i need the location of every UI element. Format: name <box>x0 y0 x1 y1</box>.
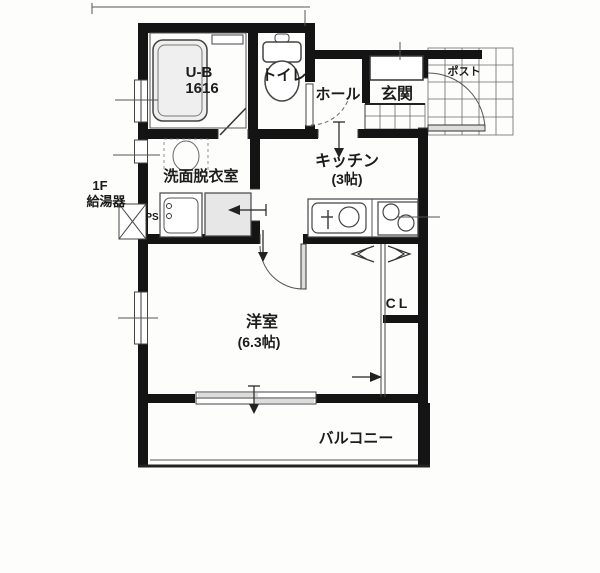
arrowhead <box>370 372 382 382</box>
floor-plan-svg: U-B 1616 トイレ ホール 玄関 ポスト キッチン (3帖) 洗面脱衣室 … <box>0 0 600 573</box>
room-door-leaf <box>301 244 306 289</box>
wall-right-main <box>418 128 428 403</box>
entrance-tile-grid <box>365 104 425 129</box>
washroom-area <box>160 139 251 237</box>
arrowhead <box>249 404 259 414</box>
entrance-label: 玄関 <box>381 84 413 103</box>
closet-folding-door-left <box>352 246 374 262</box>
wall-hall-bottom-right <box>358 129 428 138</box>
wall-ub-bottom <box>143 129 218 139</box>
pipe-space-box <box>119 204 146 239</box>
wall-room-bottom-right <box>315 394 420 403</box>
wall-ub-toilet <box>248 23 258 139</box>
wall-toilet-bottom <box>248 129 318 139</box>
kitchen-label: キッチン <box>315 153 379 170</box>
kitchen-size-label: (3帖) <box>331 171 362 187</box>
washroom-label: 洗面脱衣室 <box>163 167 238 185</box>
wall-balcony-left <box>138 403 148 467</box>
toilet-door <box>306 84 313 126</box>
western-room-size-label: (6.3帖) <box>238 334 281 350</box>
hall-label: ホール <box>315 86 360 103</box>
toilet-spout <box>275 34 289 42</box>
balcony-edge <box>138 460 430 466</box>
western-room-label: 洋室 <box>246 312 278 331</box>
closet-label: CL <box>386 295 411 311</box>
unit-bath-label: U-B <box>186 64 213 81</box>
window-washroom <box>135 140 148 163</box>
bath-counter <box>212 35 243 44</box>
closet-folding-door-right <box>388 246 410 262</box>
wall-closet-bottom <box>383 315 428 323</box>
wall-top-left <box>138 23 314 33</box>
washing-machine-pan <box>205 193 251 236</box>
water-heater-label-1: 1F <box>92 178 107 193</box>
wall-left-seg4 <box>138 344 148 403</box>
wall-hall-entrance <box>362 59 370 103</box>
wall-room-bottom-left <box>148 394 195 403</box>
balcony-label: バルコニー <box>319 430 394 447</box>
kitchen-counter <box>308 199 418 237</box>
kitchen-area <box>308 199 418 237</box>
sliding-window-panel-1 <box>198 393 258 397</box>
laundry-basin <box>173 141 199 171</box>
floor-plan-page: U-B 1616 トイレ ホール 玄関 ポスト キッチン (3帖) 洗面脱衣室 … <box>0 0 600 573</box>
water-heater-label-2: 給湯器 <box>86 194 126 209</box>
entrance-tile-lines <box>365 104 425 129</box>
arrowhead <box>258 252 268 262</box>
toilet-tank <box>263 42 301 62</box>
wall-washroom-kitchen-upper <box>250 139 260 189</box>
entrance-door-arc <box>428 73 485 130</box>
post-label: ポスト <box>448 64 481 78</box>
entrance-door-leaf <box>428 125 485 131</box>
pipe-space-label: PS <box>145 212 159 223</box>
shoe-cabinet <box>370 56 423 80</box>
arrow-hall-to-kitchen <box>333 122 345 150</box>
wall-left-ub <box>138 23 148 80</box>
sliding-window-panel-2 <box>254 399 314 403</box>
unit-bath-size-label: 1616 <box>185 80 218 97</box>
ub-door-leaf <box>220 108 246 135</box>
wall-balcony-right <box>418 403 430 467</box>
toilet-label: トイレ <box>261 67 306 84</box>
